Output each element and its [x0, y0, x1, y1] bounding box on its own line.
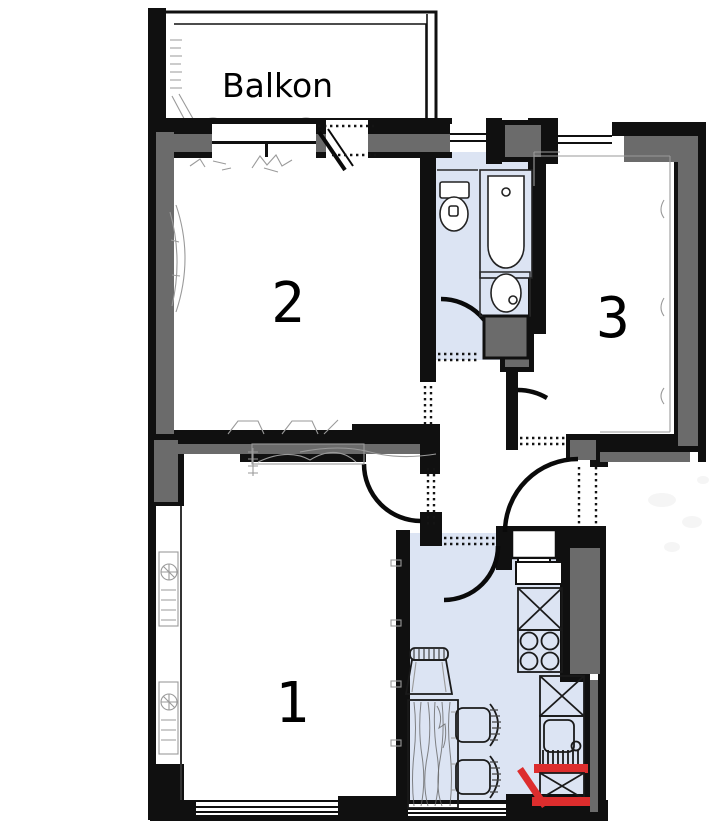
floor-plan-svg: Balkon	[0, 0, 716, 821]
window-icon-bathroom	[450, 124, 486, 152]
room-1-label: 1	[275, 671, 309, 736]
worktop	[516, 562, 562, 584]
window-icon-room2	[212, 124, 316, 158]
radiator-icon-lower	[159, 682, 178, 754]
room-2-label: 2	[271, 271, 305, 336]
toilet-icon	[440, 182, 469, 231]
balcony: Balkon	[164, 12, 436, 126]
background-smudges	[648, 476, 709, 552]
room1-door-swing-icon	[364, 464, 421, 521]
entrance-door-swing-icon	[505, 459, 578, 532]
bath-shaft	[484, 316, 528, 358]
floor-plan: Balkon	[0, 0, 716, 821]
room-3-label: 3	[596, 286, 630, 351]
bathtub-icon	[480, 170, 532, 278]
room2-sketches	[170, 155, 338, 434]
window-icon-room1	[196, 802, 338, 815]
window-icon-room3	[558, 126, 612, 154]
room3-door-swing-icon	[518, 390, 547, 398]
window-icon-kitchen	[408, 804, 506, 816]
balcony-door	[318, 120, 376, 170]
balcony-label: Balkon	[222, 66, 333, 105]
radiator-icon-upper	[159, 552, 178, 626]
